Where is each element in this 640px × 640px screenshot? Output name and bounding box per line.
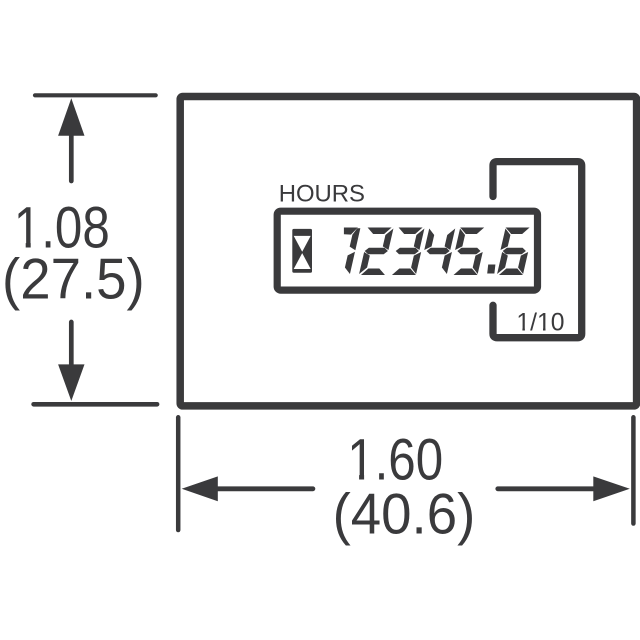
svg-text:1/10: 1/10 [516, 310, 564, 337]
svg-text:(27.5): (27.5) [2, 246, 145, 311]
svg-text:(40.6): (40.6) [333, 481, 476, 546]
svg-text:HOURS: HOURS [279, 181, 365, 208]
